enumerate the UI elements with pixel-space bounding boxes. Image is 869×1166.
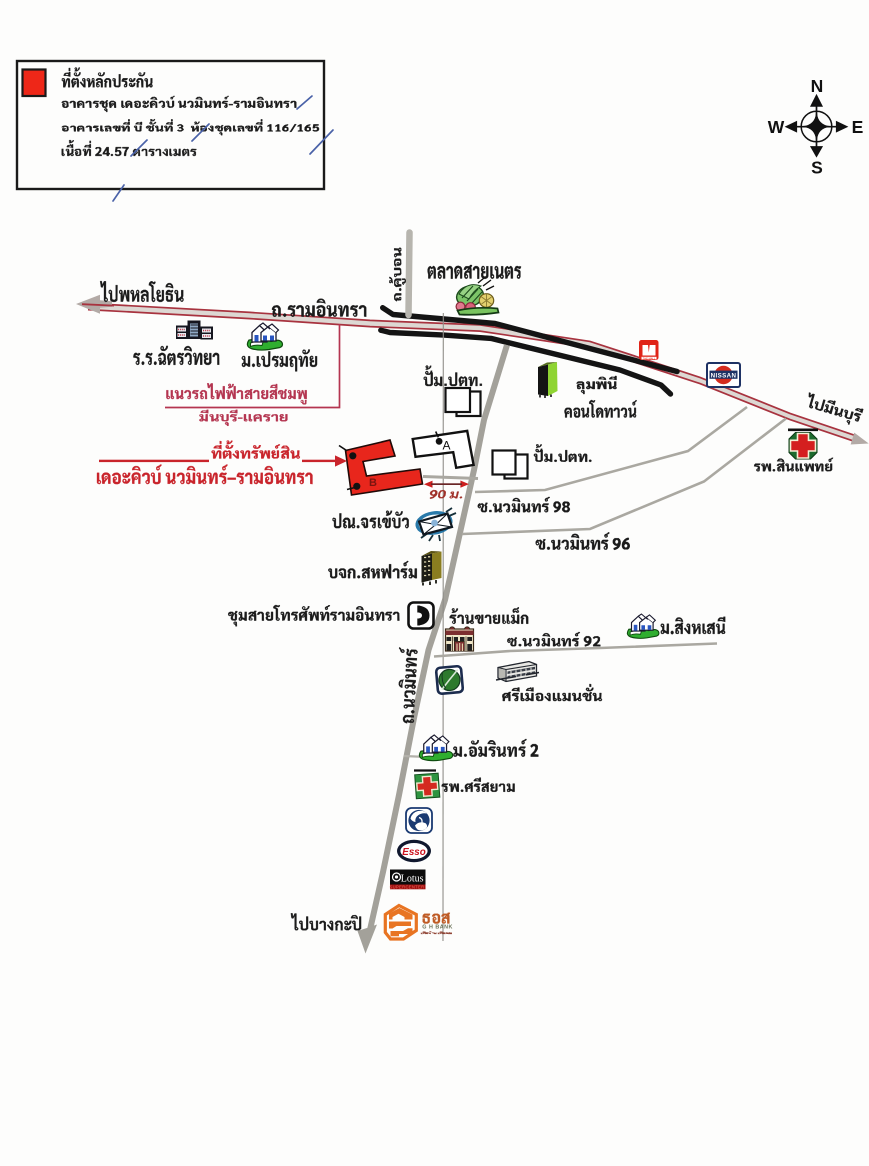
svg-text:Esso: Esso xyxy=(402,847,425,858)
svg-text:Lotus: Lotus xyxy=(401,873,424,884)
svg-text:B: B xyxy=(369,477,377,489)
svg-text:SUPERCENTER: SUPERCENTER xyxy=(390,885,425,890)
svg-text:THE MALL: THE MALL xyxy=(643,356,656,360)
svg-text:E: E xyxy=(852,117,864,137)
svg-text:A: A xyxy=(443,439,451,453)
svg-text:S: S xyxy=(811,158,823,178)
svg-text:N: N xyxy=(811,76,824,96)
svg-text:NISSAN: NISSAN xyxy=(711,373,737,380)
svg-text:W: W xyxy=(768,117,785,137)
svg-text:G H BANK: G H BANK xyxy=(422,924,453,930)
